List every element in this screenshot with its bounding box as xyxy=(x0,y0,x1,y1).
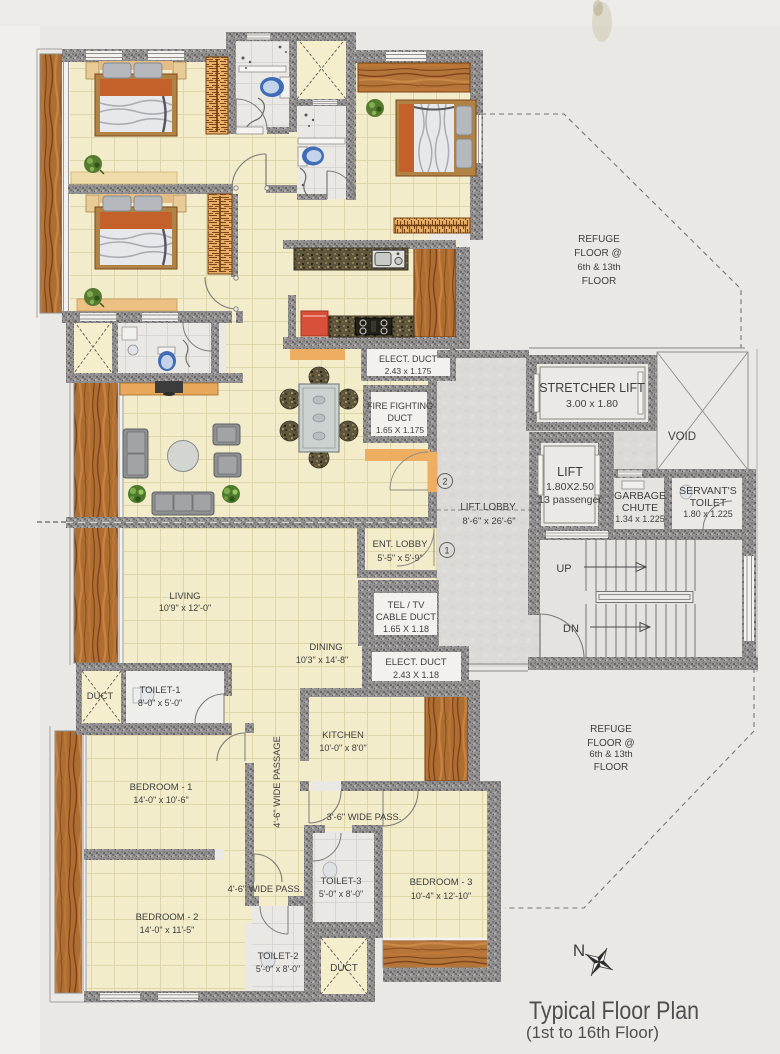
svg-text:GARBAGE: GARBAGE xyxy=(614,490,666,502)
svg-text:5'-0" x 8'-0": 5'-0" x 8'-0" xyxy=(319,889,363,899)
svg-text:VOID: VOID xyxy=(668,431,696,443)
svg-text:DUCT: DUCT xyxy=(87,691,114,702)
svg-text:FLOOR @: FLOOR @ xyxy=(587,738,634,749)
svg-text:LIVING: LIVING xyxy=(169,591,200,602)
svg-text:ENT. LOBBY: ENT. LOBBY xyxy=(373,539,429,550)
svg-text:1.65 X 1.18: 1.65 X 1.18 xyxy=(383,624,429,634)
svg-text:TOILET-3: TOILET-3 xyxy=(320,876,361,887)
svg-text:8'-6" x 26'-6": 8'-6" x 26'-6" xyxy=(462,516,515,527)
svg-text:2.43 x 1.175: 2.43 x 1.175 xyxy=(385,366,432,376)
svg-text:6th & 13th: 6th & 13th xyxy=(589,749,632,760)
svg-text:10'-4" x 12'-10": 10'-4" x 12'-10" xyxy=(411,891,471,901)
svg-text:STRETCHER LIFT: STRETCHER LIFT xyxy=(539,381,645,395)
svg-text:1.80X2.50: 1.80X2.50 xyxy=(546,481,594,493)
svg-text:10'9" x 12'-0": 10'9" x 12'-0" xyxy=(159,603,211,613)
svg-text:ELECT. DUCT: ELECT. DUCT xyxy=(379,354,438,364)
svg-text:10'-0" x 8'0": 10'-0" x 8'0" xyxy=(319,743,366,753)
svg-text:1.80 x 1.225: 1.80 x 1.225 xyxy=(683,509,733,519)
svg-text:5'-0" x 8'-0": 5'-0" x 8'-0" xyxy=(256,964,300,974)
svg-text:TOILET-2: TOILET-2 xyxy=(257,951,298,962)
svg-text:UP: UP xyxy=(556,563,571,575)
svg-text:13 passenger: 13 passenger xyxy=(538,494,602,506)
svg-text:3.00 x 1.80: 3.00 x 1.80 xyxy=(566,398,618,410)
svg-text:FLOOR @: FLOOR @ xyxy=(574,248,621,259)
svg-text:REFUGE: REFUGE xyxy=(590,724,632,735)
svg-text:FIRE FIGHTING: FIRE FIGHTING xyxy=(367,401,433,411)
svg-text:ELECT. DUCT: ELECT. DUCT xyxy=(385,657,446,668)
svg-text:(1st to 16th Floor): (1st to 16th Floor) xyxy=(526,1023,659,1042)
svg-text:LIFT: LIFT xyxy=(557,465,583,479)
svg-text:TOILET-1: TOILET-1 xyxy=(139,685,180,696)
svg-text:CABLE DUCT: CABLE DUCT xyxy=(376,612,436,623)
svg-text:DUCT: DUCT xyxy=(330,963,358,974)
svg-text:1.34 x 1.225: 1.34 x 1.225 xyxy=(615,514,665,524)
svg-text:4'-6" WIDE PASSAGE: 4'-6" WIDE PASSAGE xyxy=(272,736,282,828)
svg-text:DINING: DINING xyxy=(309,642,342,653)
svg-text:CHUTE: CHUTE xyxy=(622,502,658,514)
svg-text:DUCT: DUCT xyxy=(388,413,413,423)
svg-text:BEDROOM - 3: BEDROOM - 3 xyxy=(410,877,473,888)
svg-text:BEDROOM - 1: BEDROOM - 1 xyxy=(130,782,193,793)
svg-text:BEDROOM - 2: BEDROOM - 2 xyxy=(136,912,199,923)
svg-text:LIFT LOBBY: LIFT LOBBY xyxy=(460,502,516,513)
svg-text:10'3" x 14'-8": 10'3" x 14'-8" xyxy=(296,655,348,665)
svg-text:FLOOR: FLOOR xyxy=(594,762,628,773)
svg-text:2: 2 xyxy=(442,477,447,487)
svg-text:1.65 X 1.175: 1.65 X 1.175 xyxy=(376,425,424,435)
svg-text:1: 1 xyxy=(444,546,449,556)
svg-text:5'-5" x 5'-9": 5'-5" x 5'-9" xyxy=(377,553,422,563)
svg-text:4'-6" WIDE PASS.: 4'-6" WIDE PASS. xyxy=(228,884,303,894)
svg-text:KITCHEN: KITCHEN xyxy=(322,730,364,741)
svg-text:3'-6" WIDE PASS.: 3'-6" WIDE PASS. xyxy=(327,812,402,822)
svg-text:SERVANT'S: SERVANT'S xyxy=(679,485,737,497)
svg-text:DN: DN xyxy=(563,623,579,635)
svg-text:N: N xyxy=(573,941,585,960)
svg-text:6th & 13th: 6th & 13th xyxy=(577,262,620,273)
svg-text:FLOOR: FLOOR xyxy=(582,276,616,287)
svg-text:Typical Floor Plan: Typical Floor Plan xyxy=(529,997,699,1025)
svg-text:TEL / TV: TEL / TV xyxy=(388,600,426,611)
svg-text:TOILET: TOILET xyxy=(690,497,727,509)
svg-text:REFUGE: REFUGE xyxy=(578,234,620,245)
svg-text:8'-0" x 5'-0": 8'-0" x 5'-0" xyxy=(138,698,182,708)
svg-text:14'-0" x 10'-6": 14'-0" x 10'-6" xyxy=(133,795,188,805)
svg-text:14'-0" x 11'-5": 14'-0" x 11'-5" xyxy=(140,925,195,935)
svg-text:2.43 X 1.18: 2.43 X 1.18 xyxy=(393,670,439,680)
